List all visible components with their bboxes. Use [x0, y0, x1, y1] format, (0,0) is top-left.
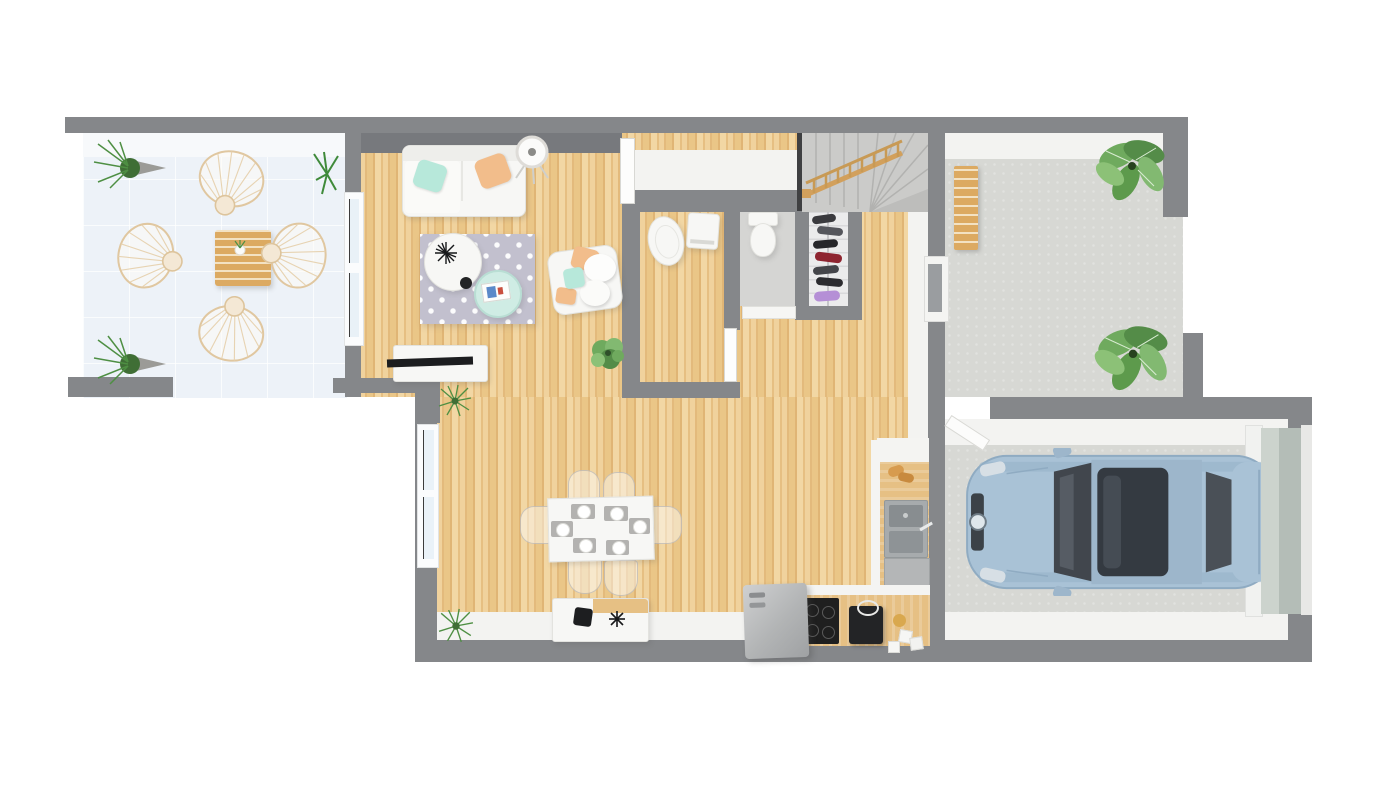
sink-drain — [903, 513, 908, 518]
staircase — [802, 133, 928, 212]
shoe — [816, 277, 844, 287]
refrigerator — [743, 583, 810, 659]
garage-top-wall-face — [945, 419, 1288, 445]
shoe-purple — [814, 290, 841, 302]
coffee-table-decor — [434, 241, 458, 265]
east-wall-house — [928, 133, 945, 662]
sink-basin-bottom — [889, 531, 923, 553]
garage-patio-corner-wall — [1183, 333, 1203, 397]
armchair-peach-cushion-small — [555, 287, 577, 306]
acrylic-chair — [568, 558, 602, 594]
garage-door-panel — [1261, 428, 1301, 614]
grass-plant-dining-nw — [438, 384, 472, 418]
coffee-table-bowl — [460, 277, 472, 289]
bath-closet-wall — [795, 212, 809, 306]
plate — [633, 520, 647, 534]
sideboard-decor-dark — [573, 607, 593, 627]
bath-toilet-bowl — [750, 223, 776, 257]
dishwasher — [884, 558, 930, 586]
patio-bench — [954, 166, 978, 250]
floor-lamp — [512, 134, 554, 184]
closet-east-wall — [848, 212, 862, 306]
wc-south-wall — [622, 382, 740, 398]
fan-chair-east — [252, 212, 333, 298]
sideboard — [552, 598, 649, 642]
bathroom-door-sill — [742, 306, 796, 319]
front-door-panel — [928, 264, 942, 312]
wc-east-wall — [724, 212, 740, 330]
canister — [909, 636, 924, 651]
burner — [822, 626, 835, 639]
north-wall-main — [345, 117, 945, 133]
cone-planter-grass-sw — [92, 334, 168, 386]
book — [481, 280, 511, 303]
dining-west-window — [417, 424, 439, 568]
plate — [556, 523, 570, 537]
washer-controls — [690, 239, 714, 245]
gold-kettle — [893, 614, 906, 627]
shoe — [812, 213, 837, 224]
burner — [806, 604, 819, 617]
kitchen-sink — [884, 500, 928, 558]
canister — [888, 641, 900, 653]
armchair-mint-cushion — [562, 266, 585, 289]
fridge-handle — [749, 602, 765, 608]
hallway-top-wall-face — [622, 150, 798, 192]
floor-plan-scene — [0, 0, 1400, 788]
patio-north-wall — [945, 117, 1175, 133]
sideboard-decor-spiky — [608, 610, 626, 628]
acrylic-chair — [650, 506, 682, 544]
toilet-lid-line — [652, 223, 683, 261]
shoe — [813, 265, 840, 276]
plate — [577, 505, 591, 519]
coffee-machine-handle — [857, 600, 879, 616]
book-cover-image — [486, 286, 496, 298]
block-north-wall — [622, 190, 802, 212]
washing-machine — [686, 212, 720, 250]
terrace-north-wall — [65, 117, 347, 133]
closet-south-wall — [795, 306, 862, 320]
kitchen-counter-right-top-face — [877, 438, 929, 462]
kitchen-counter-right-edge — [871, 440, 880, 590]
plate — [612, 541, 626, 555]
patio-plant-north — [1096, 136, 1168, 202]
cone-planter-grass-nw — [92, 138, 168, 190]
window-glass — [349, 199, 359, 263]
shoe — [813, 239, 839, 249]
fan-chair-south — [188, 285, 276, 368]
window-glass — [423, 430, 434, 490]
garage-door-outer-trim — [1301, 425, 1312, 615]
acrylic-chair — [604, 560, 638, 596]
plate — [610, 507, 624, 521]
armchair-white-cushion — [584, 254, 616, 282]
garage-north-wall — [990, 397, 1312, 419]
shoe-shelves — [809, 212, 848, 306]
patio-plant-south — [1094, 322, 1172, 392]
grass-plant-dining-sw — [438, 608, 474, 644]
hallway-open-door — [620, 138, 635, 204]
shoe-red — [815, 251, 843, 263]
step-wall-corner — [415, 393, 440, 423]
shoe — [817, 226, 844, 237]
terrace-palm-plant — [312, 150, 342, 198]
living-plant — [588, 334, 628, 372]
book-cover-accent — [497, 287, 503, 295]
garage-bottom-wall-face — [945, 612, 1288, 640]
coffee-machine — [849, 606, 883, 644]
stair-wall-slot — [797, 133, 802, 211]
burner — [822, 606, 835, 619]
sofa-seat-split — [461, 161, 463, 201]
car-top-view — [962, 448, 1280, 596]
living-terrace-window — [344, 192, 364, 346]
kitchen-counter-bottom-edge — [793, 585, 930, 595]
plate — [579, 539, 593, 553]
window-glass — [349, 273, 359, 337]
terrace-table-plant — [230, 238, 250, 258]
wc-door-leaf — [724, 328, 737, 382]
window-glass — [423, 497, 434, 559]
fridge-handle — [749, 592, 765, 598]
